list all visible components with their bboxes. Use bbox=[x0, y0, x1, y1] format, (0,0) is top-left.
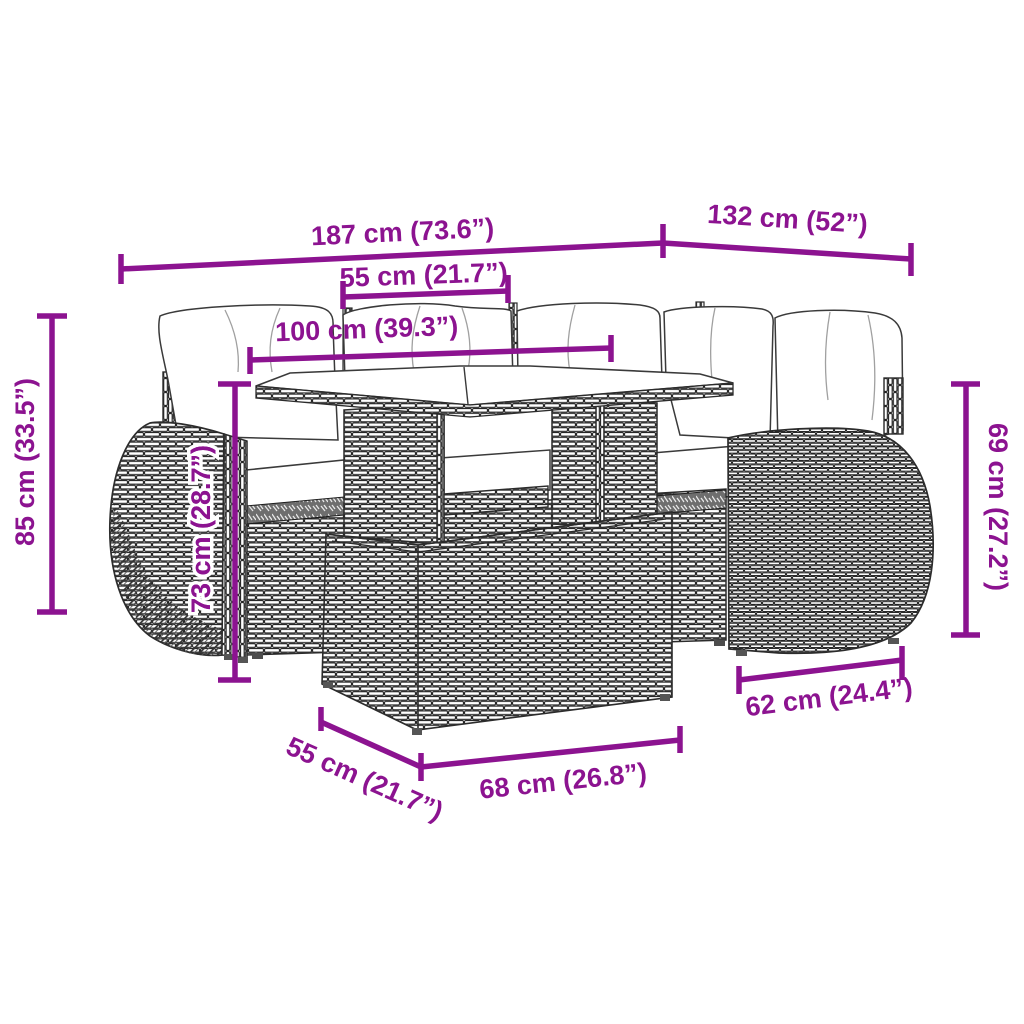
svg-text:85 cm (33.5”): 85 cm (33.5”) bbox=[10, 378, 40, 546]
svg-text:69 cm (27.2”): 69 cm (27.2”) bbox=[983, 423, 1013, 591]
svg-text:73 cm (28.7”): 73 cm (28.7”) bbox=[186, 445, 216, 613]
svg-text:55 cm (21.7”): 55 cm (21.7”) bbox=[339, 257, 508, 293]
svg-text:100 cm (39.3”): 100 cm (39.3”) bbox=[275, 311, 459, 347]
